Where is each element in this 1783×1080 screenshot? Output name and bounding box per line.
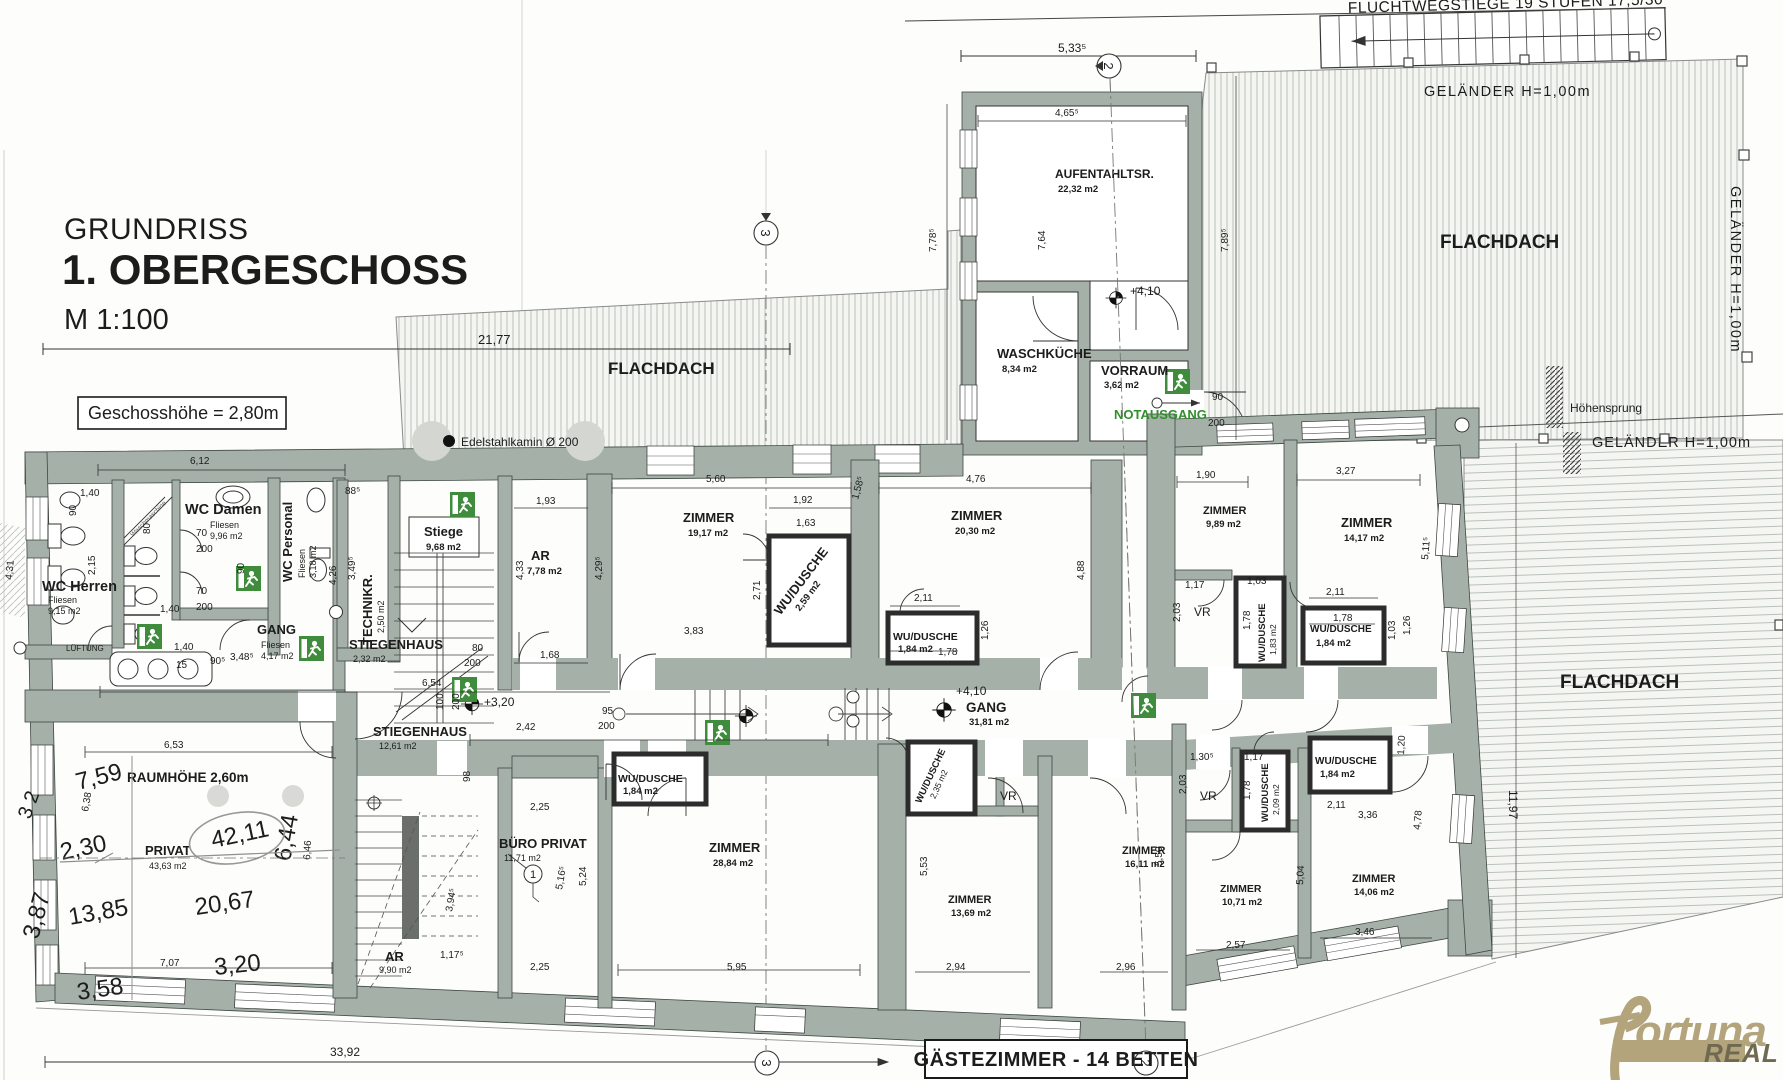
svg-text:28,84 m2: 28,84 m2 (713, 858, 753, 869)
svg-text:200: 200 (451, 693, 462, 710)
svg-text:100: 100 (435, 693, 446, 710)
svg-text:3,48⁵: 3,48⁵ (230, 652, 254, 663)
svg-text:19,17 m2: 19,17 m2 (688, 528, 728, 539)
svg-text:1,84 m2: 1,84 m2 (1320, 769, 1355, 780)
svg-text:GELÄNDER H=1,00m: GELÄNDER H=1,00m (1727, 186, 1744, 353)
svg-text:FLACHDACH: FLACHDACH (608, 359, 715, 378)
svg-text:6,12: 6,12 (190, 456, 210, 467)
svg-text:1,40: 1,40 (174, 642, 194, 653)
svg-text:6,53: 6,53 (164, 740, 184, 751)
svg-text:4,65⁵: 4,65⁵ (1055, 108, 1079, 119)
svg-text:7,64: 7,64 (1037, 230, 1048, 250)
svg-text:1,20: 1,20 (1396, 735, 1408, 755)
svg-text:9,90 m2: 9,90 m2 (379, 965, 412, 975)
svg-text:ZIMMER: ZIMMER (1352, 873, 1395, 885)
svg-text:95: 95 (602, 706, 614, 717)
svg-text:2,94: 2,94 (946, 962, 966, 973)
svg-text:Fliesen: Fliesen (297, 549, 307, 578)
svg-text:RAUMHÖHE 2,60m: RAUMHÖHE 2,60m (127, 770, 249, 785)
svg-text:2,42: 2,42 (516, 722, 536, 733)
svg-text:5,60: 5,60 (706, 474, 726, 485)
svg-text:NOTAUSGANG: NOTAUSGANG (1114, 407, 1207, 422)
svg-text:GELÄNDER H=1,00m: GELÄNDER H=1,00m (1592, 434, 1751, 451)
svg-text:3,46: 3,46 (1355, 927, 1375, 938)
svg-text:2,11: 2,11 (1327, 800, 1346, 811)
svg-text:7,07: 7,07 (160, 958, 180, 969)
svg-text:VR: VR (1200, 789, 1217, 803)
svg-text:FLACHDACH: FLACHDACH (1560, 672, 1679, 693)
svg-text:4,31: 4,31 (4, 559, 17, 580)
svg-text:ZIMMER: ZIMMER (683, 510, 735, 525)
svg-text:ZIMMER: ZIMMER (1220, 883, 1262, 895)
svg-text:5,24: 5,24 (578, 866, 589, 886)
svg-text:3: 3 (758, 229, 773, 236)
svg-text:VORRAUM: VORRAUM (1101, 363, 1168, 378)
svg-text:3,27: 3,27 (1336, 466, 1356, 477)
svg-text:2: 2 (1138, 1059, 1153, 1066)
svg-text:1,63: 1,63 (796, 518, 816, 529)
svg-text:+4,10: +4,10 (956, 684, 987, 698)
svg-text:1,78: 1,78 (1242, 780, 1253, 800)
svg-text:1,03: 1,03 (1247, 576, 1267, 587)
svg-text:GANG: GANG (966, 700, 1007, 715)
svg-text:90: 90 (1212, 392, 1224, 403)
svg-text:ZIMMER: ZIMMER (709, 840, 761, 855)
svg-text:1,90: 1,90 (1196, 470, 1216, 481)
svg-text:1,84 m2: 1,84 m2 (623, 786, 658, 797)
svg-text:10,71 m2: 10,71 m2 (1222, 897, 1262, 908)
svg-text:1,17⁵: 1,17⁵ (440, 950, 464, 961)
svg-text:WU/DUSCHE: WU/DUSCHE (1310, 624, 1372, 635)
svg-text:2,25: 2,25 (530, 802, 550, 813)
svg-text:GÄSTEZIMMER - 14 BETTEN: GÄSTEZIMMER - 14 BETTEN (914, 1048, 1199, 1071)
svg-text:1,84 m2: 1,84 m2 (1316, 638, 1351, 649)
svg-text:Edelstahlkamin Ø 200: Edelstahlkamin Ø 200 (461, 435, 579, 449)
svg-text:5,11⁵: 5,11⁵ (1420, 537, 1433, 561)
svg-text:STIEGENHAUS: STIEGENHAUS (349, 637, 443, 652)
svg-text:WC Herren: WC Herren (42, 579, 117, 595)
svg-text:TECHNIKR.: TECHNIKR. (360, 574, 375, 645)
svg-text:4,78: 4,78 (1412, 809, 1425, 830)
svg-text:1,40: 1,40 (160, 604, 180, 615)
svg-text:80: 80 (472, 643, 484, 654)
svg-text:1. OBERGESCHOSS: 1. OBERGESCHOSS (62, 246, 468, 293)
svg-text:70: 70 (196, 528, 208, 539)
svg-text:6,54: 6,54 (422, 678, 442, 689)
svg-text:LÜFTUNG: LÜFTUNG (66, 644, 104, 653)
svg-text:70: 70 (196, 586, 208, 597)
svg-text:WU/DUSCHE: WU/DUSCHE (1315, 756, 1377, 767)
svg-text:GANG: GANG (257, 622, 296, 637)
svg-text:2,03: 2,03 (1172, 602, 1183, 622)
svg-text:5,33⁵: 5,33⁵ (1058, 41, 1086, 55)
svg-text:WC Damen: WC Damen (185, 502, 262, 518)
svg-text:2,09 m2: 2,09 m2 (1271, 784, 1281, 815)
svg-text:90: 90 (68, 504, 79, 516)
svg-text:3,20: 3,20 (213, 949, 262, 981)
svg-text:33,92: 33,92 (330, 1045, 360, 1059)
svg-text:3,18 m2: 3,18 m2 (308, 545, 318, 578)
svg-text:2: 2 (1101, 62, 1116, 69)
svg-text:1,92: 1,92 (793, 495, 813, 506)
svg-text:1: 1 (530, 869, 536, 881)
svg-text:1,78: 1,78 (938, 647, 958, 658)
svg-text:20,30 m2: 20,30 m2 (955, 526, 995, 537)
svg-text:3,83: 3,83 (684, 626, 704, 637)
svg-text:31,81 m2: 31,81 m2 (969, 717, 1009, 728)
svg-text:WU/DUSCHE: WU/DUSCHE (618, 773, 683, 785)
svg-text:14,06 m2: 14,06 m2 (1354, 887, 1394, 898)
svg-text:3: 3 (759, 1059, 774, 1066)
svg-text:200: 200 (196, 602, 213, 613)
svg-text:1,17: 1,17 (1244, 752, 1264, 763)
svg-text:WU/DUSCHE: WU/DUSCHE (1260, 763, 1271, 822)
svg-text:8,34 m2: 8,34 m2 (1002, 364, 1037, 375)
svg-text:ZIMMER: ZIMMER (951, 508, 1003, 523)
svg-text:1,17: 1,17 (1185, 580, 1205, 591)
svg-text:14,17 m2: 14,17 m2 (1344, 533, 1384, 544)
svg-text:9,89 m2: 9,89 m2 (1206, 519, 1241, 530)
svg-text:1,93: 1,93 (536, 496, 556, 507)
svg-text:9,15 m2: 9,15 m2 (48, 606, 81, 616)
svg-text:6,46: 6,46 (302, 840, 314, 860)
svg-text:ZIMMER: ZIMMER (1203, 505, 1246, 517)
svg-text:11,97: 11,97 (1506, 790, 1520, 819)
svg-text:2,15: 2,15 (87, 555, 98, 575)
svg-text:1,84 m2: 1,84 m2 (898, 644, 933, 655)
svg-text:13,69 m2: 13,69 m2 (951, 908, 991, 919)
svg-text:AUFENTAHLTSR.: AUFENTAHLTSR. (1055, 167, 1154, 181)
svg-text:1,83 m2: 1,83 m2 (1268, 624, 1278, 655)
svg-text:3,36: 3,36 (1358, 810, 1378, 821)
svg-text:22,32 m2: 22,32 m2 (1058, 184, 1098, 195)
svg-text:1,78: 1,78 (1242, 610, 1253, 630)
svg-text:88⁵: 88⁵ (345, 486, 360, 497)
svg-text:4,29⁵: 4,29⁵ (594, 556, 605, 580)
svg-text:REAL: REAL (1704, 1038, 1779, 1068)
svg-text:4,76: 4,76 (966, 474, 986, 485)
svg-text:2,11: 2,11 (914, 593, 933, 604)
svg-text:WU/DUSCHE: WU/DUSCHE (893, 631, 958, 643)
svg-text:2,57: 2,57 (1226, 940, 1246, 951)
svg-text:1,03: 1,03 (1387, 620, 1398, 640)
svg-text:GELÄNDER H=1,00m: GELÄNDER H=1,00m (1424, 83, 1591, 100)
svg-text:2,11: 2,11 (1326, 587, 1345, 598)
svg-text:200: 200 (196, 544, 213, 555)
svg-text:FLACHDACH: FLACHDACH (1440, 232, 1559, 253)
svg-text:Fliesen: Fliesen (210, 520, 239, 530)
svg-text:4,33: 4,33 (515, 560, 526, 580)
svg-text:2,32 m2: 2,32 m2 (353, 654, 386, 664)
svg-text:4,88: 4,88 (1076, 560, 1087, 580)
svg-text:Geschosshöhe = 2,80m: Geschosshöhe = 2,80m (88, 403, 279, 423)
svg-text:43,63 m2: 43,63 m2 (149, 861, 187, 871)
svg-text:4,17 m2: 4,17 m2 (261, 651, 294, 661)
svg-text:21,77: 21,77 (478, 332, 511, 347)
svg-text:+4,10: +4,10 (1130, 284, 1161, 298)
svg-text:Fliesen: Fliesen (261, 640, 290, 650)
svg-text:80: 80 (142, 522, 153, 534)
svg-text:2,25: 2,25 (530, 962, 550, 973)
svg-text:Stiege: Stiege (424, 524, 463, 539)
svg-text:1,26: 1,26 (980, 620, 991, 640)
svg-text:1,30⁵: 1,30⁵ (1190, 752, 1214, 763)
svg-text:WASCHKÜCHE: WASCHKÜCHE (997, 346, 1092, 361)
svg-text:200: 200 (464, 658, 481, 669)
svg-text:90: 90 (236, 562, 247, 574)
svg-text:5,04: 5,04 (1295, 865, 1307, 885)
svg-text:1,68: 1,68 (540, 650, 560, 661)
svg-text:1,78: 1,78 (1333, 613, 1353, 624)
svg-text:M 1:100: M 1:100 (64, 304, 169, 336)
svg-text:GRUNDRISS: GRUNDRISS (64, 213, 249, 246)
svg-text:7,89⁵: 7,89⁵ (1220, 228, 1231, 252)
svg-text:WC Personal: WC Personal (280, 502, 295, 582)
svg-text:5,50: 5,50 (1154, 846, 1165, 866)
svg-text:+3,20: +3,20 (484, 695, 515, 709)
svg-text:9,96 m2: 9,96 m2 (210, 531, 243, 541)
svg-text:2,50 m2: 2,50 m2 (376, 600, 386, 633)
svg-text:ZIMMER: ZIMMER (948, 894, 991, 906)
svg-text:90⁵: 90⁵ (210, 656, 225, 667)
svg-text:5,53: 5,53 (919, 856, 930, 876)
svg-text:2,96: 2,96 (1116, 962, 1136, 973)
svg-text:15: 15 (176, 660, 188, 671)
svg-text:VR: VR (1000, 789, 1017, 803)
svg-text:9,68 m2: 9,68 m2 (426, 542, 461, 553)
svg-text:12,61 m2: 12,61 m2 (379, 741, 417, 751)
svg-text:PRIVAT: PRIVAT (145, 843, 191, 858)
svg-text:7,78 m2: 7,78 m2 (527, 566, 562, 577)
svg-text:7,78⁵: 7,78⁵ (928, 228, 939, 252)
svg-text:2,71: 2,71 (752, 580, 763, 600)
svg-text:VR: VR (1194, 605, 1211, 619)
svg-text:1,26: 1,26 (1402, 615, 1413, 635)
svg-text:ZIMMER: ZIMMER (1341, 515, 1393, 530)
svg-text:200: 200 (598, 721, 615, 732)
svg-text:1,40: 1,40 (80, 488, 100, 499)
svg-text:4,26: 4,26 (328, 565, 339, 585)
svg-text:11,71 m2: 11,71 m2 (504, 853, 541, 863)
svg-text:Fliesen: Fliesen (48, 595, 77, 605)
svg-text:5,95: 5,95 (727, 962, 747, 973)
svg-text:AR: AR (385, 949, 404, 964)
svg-text:3,49⁵: 3,49⁵ (347, 556, 358, 580)
svg-text:WU/DUSCHE: WU/DUSCHE (1257, 603, 1268, 662)
svg-text:AR: AR (531, 548, 550, 563)
svg-text:Höhensprung: Höhensprung (1570, 401, 1642, 415)
svg-text:98: 98 (462, 770, 473, 782)
svg-text:BÜRO PRIVAT: BÜRO PRIVAT (499, 836, 587, 851)
svg-text:200: 200 (1208, 418, 1225, 429)
svg-text:2,03: 2,03 (1178, 774, 1189, 794)
svg-text:STIEGENHAUS: STIEGENHAUS (373, 724, 467, 739)
